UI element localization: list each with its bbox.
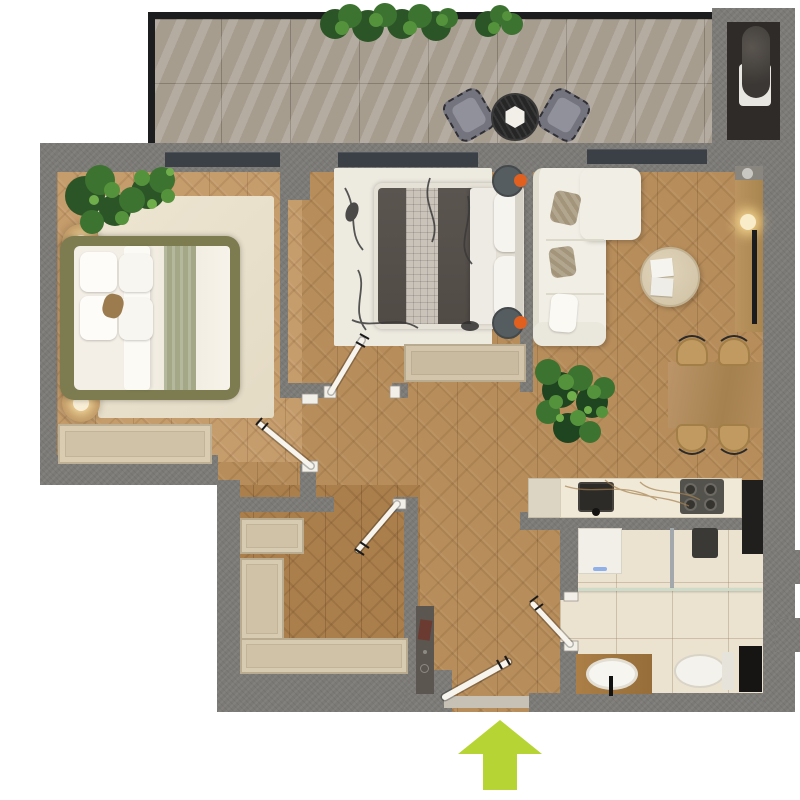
south-wall-entry-right: [529, 693, 795, 712]
water-heater-tank: [742, 26, 770, 98]
washer-display: [593, 567, 607, 571]
sofa-pillow-white: [548, 293, 578, 333]
tv: [752, 230, 757, 324]
balcony-bistro-table: [491, 93, 539, 141]
bedroom1-dresser: [58, 424, 212, 464]
closet-top: [246, 644, 402, 668]
floor-plan-canvas: [0, 0, 800, 800]
shower-glass-screen: [578, 588, 762, 591]
bed1-pillow: [119, 254, 153, 292]
toilet-tank: [722, 652, 734, 690]
bed2-headboard: [515, 186, 523, 326]
bedroom1-window: [165, 152, 282, 167]
bathroom-west-wall-upper: [560, 527, 578, 600]
coffee-table: [640, 247, 700, 307]
console-book: [418, 619, 433, 640]
kitchen-faucet: [592, 508, 600, 516]
tall-appliance-column: [742, 480, 763, 554]
hall-wardrobe-long: [240, 638, 408, 674]
hall-wardrobe-tall: [240, 558, 284, 640]
sideboard-lamp: [740, 214, 756, 230]
balcony-railing-left: [148, 12, 155, 150]
front-door-threshold: [444, 696, 529, 708]
bed2-plaid-runner: [406, 188, 438, 324]
bed1-pillow: [80, 252, 117, 292]
cooktop: [680, 479, 724, 514]
closet-top: [246, 564, 278, 634]
sofa-chaise: [580, 168, 641, 240]
burner: [684, 498, 697, 511]
chair-cushion: [450, 96, 488, 135]
toilet-bowl: [674, 654, 726, 688]
closet-top: [246, 524, 298, 548]
sofa-seam: [546, 239, 604, 241]
dining-chair: [676, 338, 708, 366]
bedroom-divider-wall: [280, 198, 288, 390]
burner: [684, 483, 697, 496]
bed2-sheet-fold: [470, 188, 496, 324]
exterior-right: [795, 0, 800, 800]
kitchen-cabinet: [528, 478, 562, 518]
dining-table: [668, 362, 763, 428]
balcony-sliding-door: [587, 149, 707, 164]
south-wall-entry-left: [404, 693, 444, 712]
hallway-west-wall: [217, 480, 240, 690]
bedroom2-window: [338, 152, 478, 167]
orange-accent: [514, 316, 527, 329]
magazine: [650, 277, 673, 296]
bedroom2-south-wall-stub: [392, 383, 408, 398]
bedroom-divider-pier: [280, 143, 310, 200]
media-sideboard: [735, 180, 763, 332]
hall-closet-niche: [240, 518, 304, 554]
east-wall-notch-1: [763, 550, 800, 584]
dining-chair: [718, 338, 750, 366]
burner: [704, 483, 717, 496]
vanity-faucet: [609, 676, 613, 696]
dresser-top: [65, 431, 205, 457]
washing-machine: [578, 528, 622, 574]
bed1-sage-runner: [164, 246, 196, 390]
balcony-floor: [152, 16, 714, 148]
console-item: [423, 650, 427, 654]
bed1-pillow: [119, 298, 153, 340]
shelf-dish: [742, 168, 753, 179]
shower-rail: [670, 528, 674, 590]
console-tray: [420, 664, 429, 673]
magazine: [650, 258, 674, 278]
east-wall-notch-2: [775, 618, 800, 652]
entry-console: [416, 606, 434, 694]
exterior-top-left: [0, 0, 148, 143]
bench-top: [411, 351, 519, 375]
west-wall: [40, 143, 57, 485]
balcony-railing-top: [150, 12, 722, 19]
exterior-bottom: [0, 712, 800, 800]
bedroom2-bench: [404, 344, 526, 382]
bathroom-dark-niche: [739, 646, 762, 692]
sofa-pillow-taupe: [548, 245, 577, 278]
shower-head: [692, 528, 718, 558]
bedroom2-south-wall-left: [280, 383, 332, 398]
orange-accent: [514, 174, 527, 187]
burner: [704, 498, 717, 511]
chair-cushion: [545, 96, 583, 135]
